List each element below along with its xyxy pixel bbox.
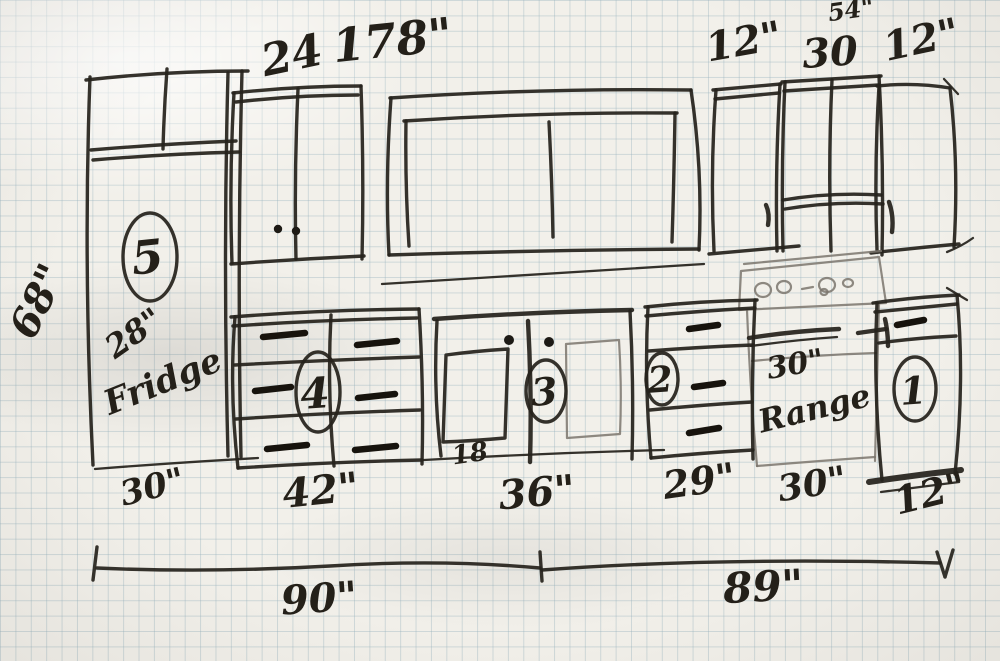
edge-top (877, 84, 950, 88)
drawer-handle (689, 325, 718, 329)
inner-right (672, 113, 675, 242)
range-size-label: 30" (764, 342, 827, 386)
edge-top-2 (233, 318, 417, 326)
edge-left (876, 86, 879, 250)
upper-divider (163, 69, 167, 149)
overall-89-label: 89" (721, 560, 805, 613)
edge-bottom (709, 246, 799, 254)
drawer-handle (689, 428, 719, 433)
door-width-label: 18 (450, 437, 490, 472)
drawer-line (879, 336, 956, 343)
backsplash-top (744, 251, 881, 264)
burner-knob (755, 283, 771, 297)
door-bottom-2 (785, 203, 883, 209)
drawer-bank-42: 4 (231, 309, 423, 468)
door-divider (830, 80, 832, 251)
upper-cabinet-left (231, 86, 364, 264)
edge-top-1 (713, 84, 781, 90)
upper-cabinet-30 (782, 76, 883, 255)
dim-line (97, 563, 540, 570)
upper-total-54-label: 54" (826, 0, 875, 27)
door-knob (292, 227, 300, 235)
drawer-handle (897, 320, 924, 325)
cabinet-number-5: 5 (129, 229, 166, 286)
outer-left (387, 98, 391, 255)
upper-12-right-label: 12" (879, 9, 964, 71)
end-arrow-right (937, 550, 953, 577)
edge-bottom (871, 244, 959, 253)
oven-handle-1 (749, 329, 839, 338)
drawer-handle (357, 341, 397, 345)
inner-top (404, 113, 677, 121)
base-30-right-label: 30" (775, 458, 850, 510)
edge-left (231, 93, 234, 263)
counter-mark (858, 329, 886, 333)
left-height-68-label: 68" (0, 256, 76, 345)
dim-line-90: 90" (93, 547, 542, 625)
drawer-handle (358, 394, 395, 398)
door-knob (544, 337, 554, 347)
edge-right (630, 311, 633, 459)
edge-right (419, 309, 423, 464)
dim-line-89: 89" (542, 550, 953, 613)
drawer-handle (694, 383, 723, 387)
door-handle (766, 205, 769, 225)
fridge-size-label: 28" (97, 300, 170, 367)
edge-top-1 (231, 309, 419, 317)
edge-right (361, 86, 363, 259)
edge-right (950, 88, 956, 247)
burner-knob (777, 281, 791, 293)
graph-paper-sheet: 5 28" Fridge (0, 0, 1000, 661)
edge-right (955, 295, 961, 474)
outer-bottom (389, 249, 699, 255)
edge-left (782, 82, 785, 251)
edge-top-2 (646, 308, 755, 316)
door-knob (274, 225, 282, 233)
edge-left (436, 321, 441, 456)
outer-top (390, 90, 691, 98)
oven-handle-2 (751, 337, 837, 346)
inner-left (406, 121, 409, 246)
outer-right (691, 90, 700, 250)
base-cabinet-29: 2 (645, 300, 757, 459)
edge-right-1 (226, 73, 229, 456)
edge-left (87, 77, 93, 465)
edge-left (233, 317, 238, 468)
base-30-left-label: 30" (116, 460, 189, 515)
base-12-label: 12" (889, 462, 970, 523)
cabinet-number-3: 3 (529, 368, 559, 415)
overall-90-label: 90" (279, 572, 359, 624)
top-178-label: 178" (330, 7, 455, 73)
mid-tick (540, 552, 542, 581)
base-42-label: 42" (280, 463, 361, 518)
sink-cabinet-36: 3 18 (424, 310, 664, 471)
knob-dash (802, 287, 813, 289)
drawer-handle (355, 446, 396, 450)
door-right (566, 340, 621, 438)
cabinet-number-4: 4 (299, 368, 332, 419)
upper-12-left-label: 12" (702, 12, 786, 72)
door-handle (889, 202, 893, 232)
base-36-label: 36" (497, 466, 577, 519)
end-tick-left (93, 547, 97, 580)
drawer-handle (267, 445, 307, 449)
edge-left (712, 90, 716, 251)
cabinet-number-2: 2 (645, 358, 674, 402)
edge-top (434, 310, 632, 319)
shelf-line-2 (93, 152, 239, 160)
edge-right (776, 84, 780, 251)
upper-30-label: 30 (801, 27, 860, 78)
edge-top-2 (875, 304, 957, 312)
door-knob (504, 335, 514, 345)
window (382, 90, 704, 284)
drawer-line-1 (649, 345, 753, 351)
drawer-handle (263, 333, 305, 337)
door-left (443, 349, 508, 442)
drawer-line-1 (235, 357, 419, 365)
sash-divider (549, 122, 553, 237)
burner-knob (843, 279, 853, 287)
column-divider (330, 315, 334, 466)
sill-sweep (382, 264, 704, 284)
top-24-label: 24 (256, 25, 327, 88)
door-bottom-1 (783, 194, 881, 200)
edge-top-2 (715, 93, 779, 99)
cabinet-number-1: 1 (898, 367, 928, 414)
range: 30" Range (739, 251, 888, 466)
kitchen-sketch: 5 28" Fridge (0, 0, 1000, 661)
base-29-label: 29" (659, 453, 738, 508)
upper-cabinet-12-right (871, 79, 973, 253)
drawer-handle (255, 387, 291, 391)
